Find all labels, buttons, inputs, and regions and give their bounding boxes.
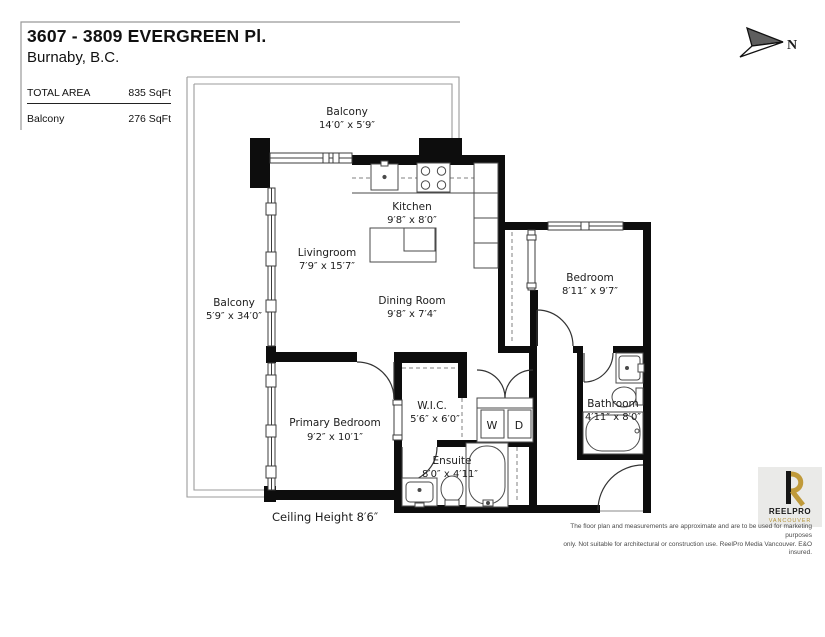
room-label-bedroom: Bedroom (566, 272, 614, 284)
washer-label: W (487, 419, 498, 432)
dryer-label: D (515, 419, 523, 432)
compass-north-icon: N (740, 28, 797, 57)
disclaimer-text: The floor plan and measurements are appr… (562, 523, 812, 558)
compass-north-label: N (787, 38, 797, 53)
room-label-livingroom: Livingroom (298, 247, 356, 259)
logo-brand-text: REELPRO (769, 507, 811, 516)
room-label-ensuite: Ensuite (433, 455, 472, 467)
laundry-closet (477, 398, 533, 442)
ensuite-toilet-icon (441, 476, 463, 506)
reelpro-logo-mark: REELPRO VANCOUVER (758, 467, 822, 527)
room-label-wic: W.I.C. (417, 400, 447, 412)
room-label-bathroom: Bathroom (587, 398, 639, 410)
room-dims-bathroom: 4′11″ x 8′0″ (585, 412, 641, 423)
room-label-balcony-left: Balcony (213, 297, 255, 309)
room-dims-bedroom: 8′11″ x 9′7″ (562, 286, 618, 297)
room-dims-kitchen: 9′8″ x 8′0″ (387, 215, 437, 226)
floor-plan-page: 3607 - 3809 EVERGREEN Pl. Burnaby, B.C. … (0, 0, 825, 637)
room-label-kitchen: Kitchen (392, 201, 431, 213)
room-dims-primary-bedroom: 9′2″ x 10′1″ (307, 432, 363, 443)
room-label-dining: Dining Room (378, 295, 445, 307)
ensuite-sink-icon (402, 478, 437, 507)
reelpro-logo: REELPRO VANCOUVER (758, 467, 822, 527)
title-block-frame (21, 22, 460, 130)
stove-icon (417, 163, 450, 192)
ceiling-height-note: Ceiling Height 8′6″ (272, 510, 379, 524)
room-label-balcony-top: Balcony (326, 106, 368, 118)
bathroom-sink-icon (616, 353, 644, 383)
room-dims-balcony-left: 5′9″ x 34′0″ (206, 311, 262, 322)
room-dims-ensuite: 8′0″ x 4′11″ (422, 469, 478, 480)
disclaimer-line-1: The floor plan and measurements are appr… (562, 523, 812, 541)
room-dims-dining: 9′8″ x 7′4″ (387, 309, 437, 320)
room-label-primary-bedroom: Primary Bedroom (289, 417, 380, 429)
room-dims-wic: 5′6″ x 6′0″ (410, 414, 460, 425)
room-dims-balcony-top: 14′0″ x 5′9″ (319, 120, 375, 131)
room-dims-livingroom: 7′9″ x 15′7″ (299, 261, 355, 272)
disclaimer-line-2: only. Not suitable for architectural or … (562, 541, 812, 559)
